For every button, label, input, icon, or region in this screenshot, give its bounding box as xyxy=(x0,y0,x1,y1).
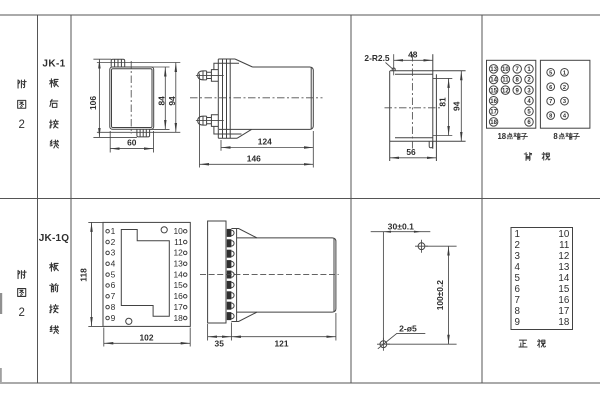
svg-text:13: 13 xyxy=(558,262,569,273)
svg-text:8: 8 xyxy=(549,114,552,120)
svg-text:16: 16 xyxy=(558,295,569,306)
svg-text:100±0.2: 100±0.2 xyxy=(435,280,445,311)
svg-text:60: 60 xyxy=(127,138,137,148)
svg-text:6: 6 xyxy=(527,120,531,126)
svg-text:84: 84 xyxy=(157,96,167,106)
svg-text:9: 9 xyxy=(111,313,116,323)
svg-text:2-R2.5: 2-R2.5 xyxy=(364,53,389,63)
svg-text:9: 9 xyxy=(515,317,520,328)
svg-text:56: 56 xyxy=(406,147,416,157)
svg-text:1: 1 xyxy=(515,229,520,240)
svg-text:2: 2 xyxy=(515,240,520,251)
svg-text:10: 10 xyxy=(558,229,569,240)
svg-text:15: 15 xyxy=(490,88,497,94)
svg-text:2: 2 xyxy=(18,307,24,319)
svg-text:7: 7 xyxy=(111,291,116,301)
svg-text:1: 1 xyxy=(111,226,116,236)
svg-text:14: 14 xyxy=(558,273,569,284)
svg-text:124: 124 xyxy=(258,137,272,147)
svg-text:JK-1Q: JK-1Q xyxy=(39,233,69,244)
svg-text:5: 5 xyxy=(549,70,552,76)
svg-text:121: 121 xyxy=(275,339,289,349)
svg-text:JK-1: JK-1 xyxy=(42,58,65,69)
svg-text:7: 7 xyxy=(549,99,552,105)
svg-text:30±0.1: 30±0.1 xyxy=(388,222,414,232)
svg-text:15: 15 xyxy=(173,280,183,290)
svg-text:8: 8 xyxy=(553,132,558,141)
svg-text:94: 94 xyxy=(452,101,462,111)
svg-text:2-ø5: 2-ø5 xyxy=(399,324,417,334)
svg-text:8: 8 xyxy=(111,302,116,312)
svg-text:16: 16 xyxy=(173,291,183,301)
svg-text:3: 3 xyxy=(563,99,566,105)
svg-text:6: 6 xyxy=(515,284,521,295)
svg-text:106: 106 xyxy=(88,96,98,110)
svg-text:4: 4 xyxy=(527,99,531,105)
svg-text:6: 6 xyxy=(549,85,552,91)
svg-text:118: 118 xyxy=(78,268,88,282)
svg-text:12: 12 xyxy=(173,248,183,258)
svg-text:8: 8 xyxy=(516,78,520,84)
svg-text:2: 2 xyxy=(111,237,116,247)
svg-text:17: 17 xyxy=(558,306,569,317)
svg-text:16: 16 xyxy=(490,99,497,105)
svg-text:13: 13 xyxy=(490,67,497,73)
svg-text:4: 4 xyxy=(111,259,116,269)
svg-text:9: 9 xyxy=(516,88,520,94)
svg-text:12: 12 xyxy=(558,251,569,262)
svg-text:102: 102 xyxy=(140,332,154,342)
svg-text:1: 1 xyxy=(527,67,531,73)
svg-text:81: 81 xyxy=(438,97,448,107)
svg-text:3: 3 xyxy=(515,251,521,262)
svg-text:35: 35 xyxy=(215,339,225,349)
svg-text:11: 11 xyxy=(174,237,183,247)
svg-text:14: 14 xyxy=(490,78,497,84)
svg-text:2: 2 xyxy=(563,85,566,91)
svg-text:5: 5 xyxy=(527,110,531,116)
svg-text:15: 15 xyxy=(558,284,569,295)
svg-text:12: 12 xyxy=(502,88,509,94)
svg-text:5: 5 xyxy=(515,273,521,284)
svg-text:14: 14 xyxy=(173,269,183,279)
svg-text:18: 18 xyxy=(490,120,497,126)
svg-text:13: 13 xyxy=(173,259,183,269)
svg-text:3: 3 xyxy=(527,88,531,94)
svg-text:18: 18 xyxy=(173,313,183,323)
svg-text:18: 18 xyxy=(558,317,569,328)
svg-text:48: 48 xyxy=(408,50,418,60)
svg-text:18: 18 xyxy=(497,132,506,141)
svg-text:2: 2 xyxy=(527,78,531,84)
svg-text:5: 5 xyxy=(111,269,116,279)
svg-text:7: 7 xyxy=(515,295,520,306)
svg-text:1: 1 xyxy=(563,70,566,76)
svg-text:10: 10 xyxy=(173,226,183,236)
svg-text:4: 4 xyxy=(515,262,521,273)
svg-text:17: 17 xyxy=(173,302,183,312)
svg-text:17: 17 xyxy=(490,110,497,116)
svg-text:2: 2 xyxy=(18,119,24,131)
svg-text:146: 146 xyxy=(247,153,261,163)
svg-text:11: 11 xyxy=(559,240,569,251)
svg-text:8: 8 xyxy=(515,306,521,317)
svg-text:7: 7 xyxy=(516,67,520,73)
svg-text:11: 11 xyxy=(502,78,509,84)
svg-text:10: 10 xyxy=(502,67,509,73)
svg-text:94: 94 xyxy=(167,96,177,106)
svg-text:6: 6 xyxy=(111,280,116,290)
svg-text:3: 3 xyxy=(111,248,116,258)
